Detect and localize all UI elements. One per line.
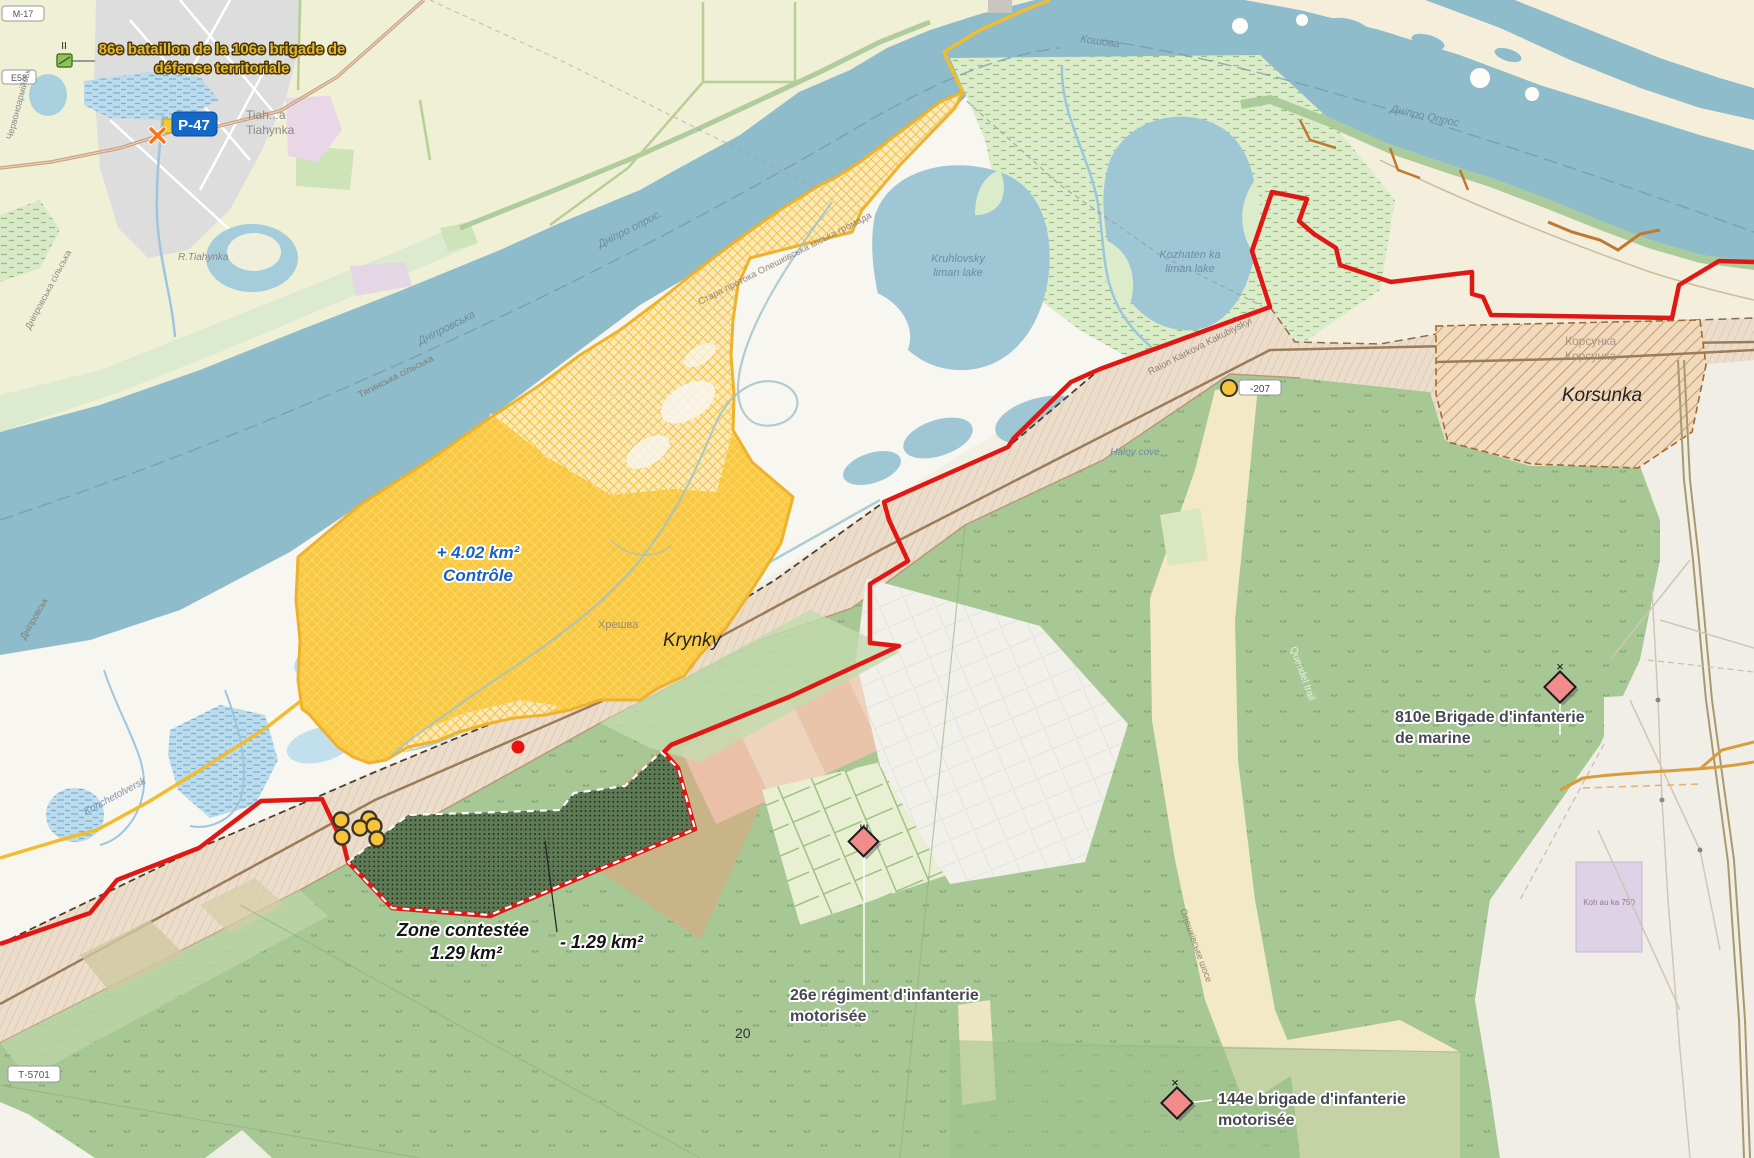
svg-text:Корсунка: Корсунка <box>1565 349 1616 363</box>
svg-text:- 1.29 km²: - 1.29 km² <box>560 932 644 952</box>
svg-text:Koh au ka 750: Koh au ka 750 <box>1583 898 1635 907</box>
svg-text:Kozhaten ka: Kozhaten ka <box>1159 249 1220 261</box>
svg-text:Korsunka: Korsunka <box>1562 385 1642 406</box>
svg-text:motorisée: motorisée <box>790 1008 867 1025</box>
svg-text:810e Brigade d'infanterie: 810e Brigade d'infanterie <box>1395 709 1585 726</box>
svg-text:défense territoriale: défense territoriale <box>154 60 289 77</box>
svg-text:Корсунка: Корсунка <box>1565 334 1616 348</box>
svg-text:Tiah...a: Tiah...a <box>246 108 286 122</box>
svg-text:86e bataillon de la 106e briga: 86e bataillon de la 106e brigade de <box>99 41 346 58</box>
svg-text:-207: -207 <box>1250 384 1270 395</box>
svg-text:Kruhlovsky: Kruhlovsky <box>931 253 986 265</box>
svg-text:Contrôle: Contrôle <box>443 566 513 585</box>
svg-text:Tiahynka: Tiahynka <box>246 123 295 137</box>
svg-text:1.29 km²: 1.29 km² <box>430 943 503 963</box>
svg-text:Хрешва: Хрешва <box>598 619 639 631</box>
svg-text:P-47: P-47 <box>178 117 210 134</box>
svg-text:20: 20 <box>735 1025 751 1041</box>
svg-text:II: II <box>61 41 67 52</box>
svg-text:liman lake: liman lake <box>1165 263 1215 275</box>
svg-text:M-17: M-17 <box>13 9 34 19</box>
svg-text:26e régiment d'infanterie: 26e régiment d'infanterie <box>790 987 979 1004</box>
svg-text:liman lake: liman lake <box>933 267 983 279</box>
svg-text:motorisée: motorisée <box>1218 1112 1295 1129</box>
svg-text:de marine: de marine <box>1395 730 1471 747</box>
svg-text:Halov cove: Halov cove <box>1110 447 1160 458</box>
svg-text:Zone contestée: Zone contestée <box>396 920 529 940</box>
svg-text:R.Tiahynka: R.Tiahynka <box>178 252 229 263</box>
svg-text:144e brigade d'infanterie: 144e brigade d'infanterie <box>1218 1091 1406 1108</box>
svg-text:Т-5701: Т-5701 <box>18 1070 50 1081</box>
svg-text:+ 4.02 km²: + 4.02 km² <box>437 543 521 562</box>
svg-text:Krynky: Krynky <box>663 630 723 651</box>
